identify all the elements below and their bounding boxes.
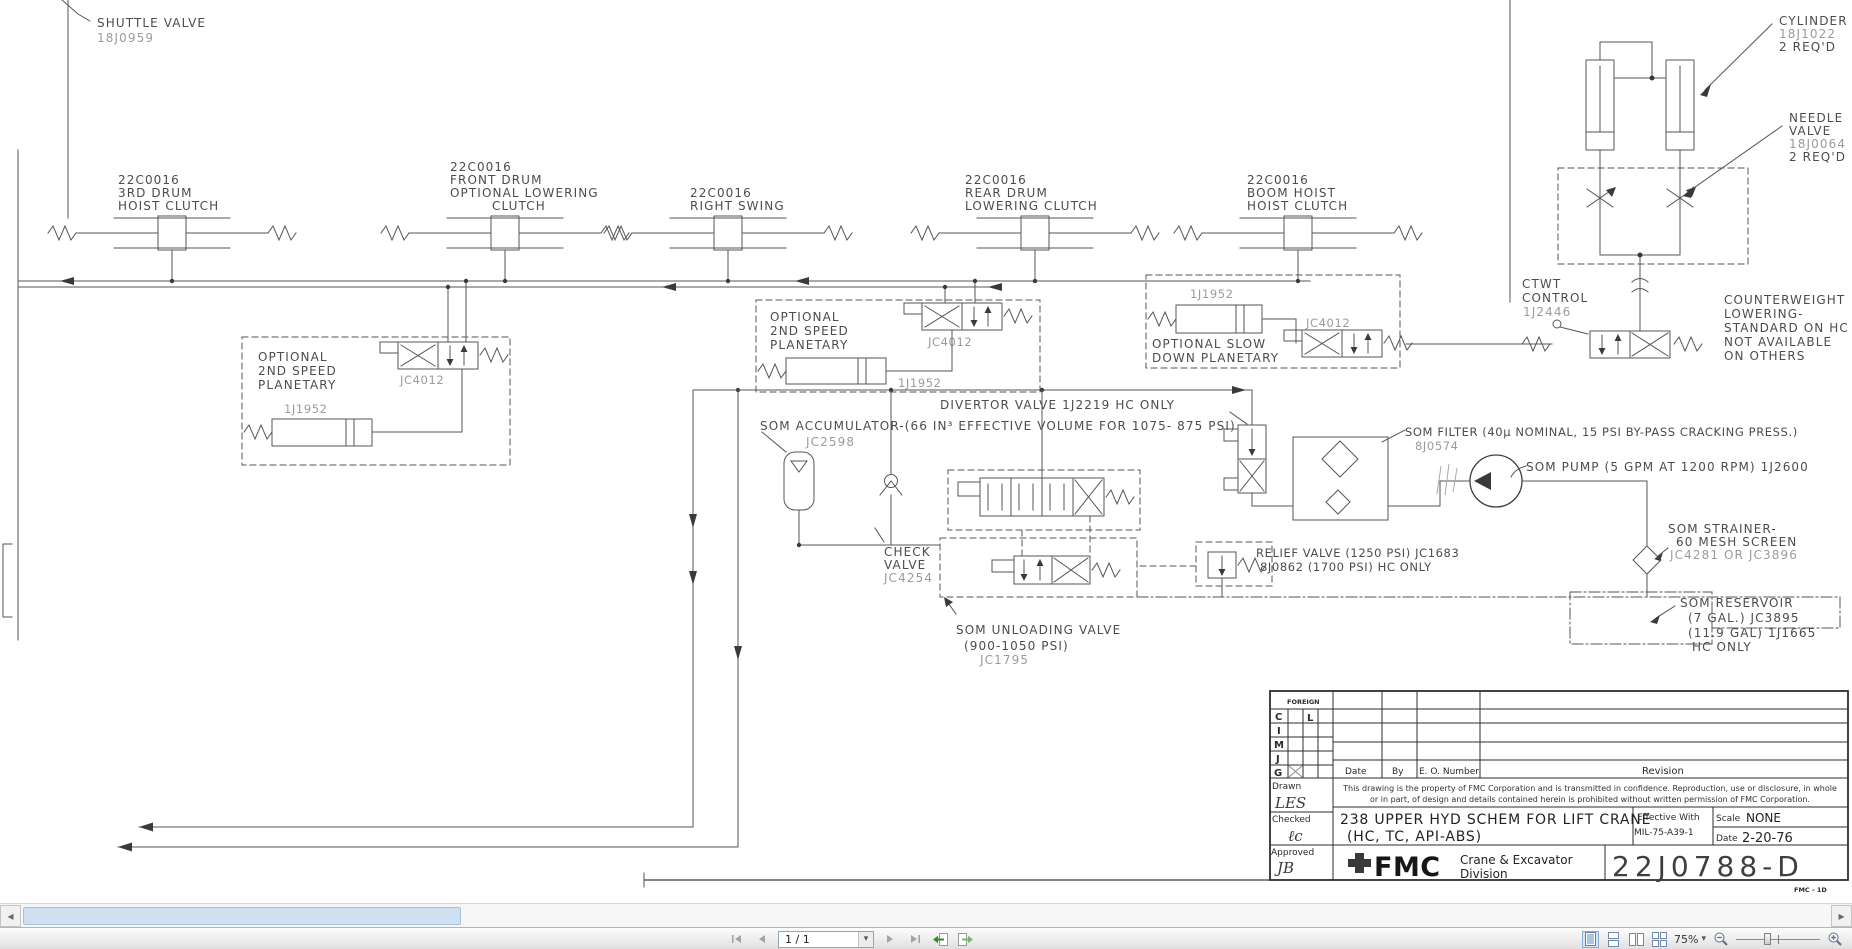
pump-label: SOM PUMP (5 GPM AT 1200 RPM) 1J2600 [1526,460,1809,474]
title-block: FOREIGN C I M J G L Date By E. O. Number… [1270,691,1848,894]
planetary-slow-down: 1J1952 JC4012 OPTIONAL SLOW DOWN PLANETA… [1146,275,1552,368]
planetary-label: OPTIONAL SLOW [1152,337,1266,351]
fmc-logo-text: FMC [1374,852,1441,883]
check-valve-label: VALVE [884,558,926,572]
clutch-label: FRONT DRUM [450,173,543,187]
clutch-label: 3RD DRUM [118,186,193,200]
relief-label: RELIEF VALVE (1250 PSI) JC1683 [1256,546,1459,560]
strainer-part: JC4281 OR JC3896 [1669,548,1798,562]
relief-label: 8J0862 (1700 PSI) HC ONLY [1260,560,1432,574]
filter-label: SOM FILTER (40μ NOMINAL, 15 PSI BY-PASS … [1405,425,1798,439]
note-line: ON OTHERS [1724,349,1805,363]
note-line: STANDARD ON HC [1724,321,1849,335]
cylinder-part: 1J1952 [284,402,328,416]
zoom-slider-center-tick [1778,935,1779,944]
planetary-label: OPTIONAL [770,310,840,324]
cylinder-label-line: CYLINDER [1779,14,1848,28]
zoom-dropdown-caret-icon: ▾ [1701,934,1706,944]
clutch-label: HOIST CLUTCH [1247,199,1348,213]
ctwt-part: 1J2446 [1523,305,1571,319]
next-page-button[interactable] [881,931,899,948]
divertor-valve [1224,390,1293,506]
sheet-border-marks [3,0,1510,887]
sheet-footnote: FMC - 1D [1794,886,1827,894]
drawing-title: (HC, TC, API-ABS) [1347,829,1482,845]
pdf-toolbar: 1 / 1 ▾ 75% ▾ [0,927,1852,949]
clutch-3rd-drum: 22C0016 3RD DRUM HOIST CLUTCH [48,173,296,283]
pdf-viewer-window: SHUTTLE VALVE 18J0959 22C0016 3RD DRUM H… [0,0,1852,949]
zoom-out-button[interactable] [1712,931,1730,948]
date-value: 2-20-76 [1742,831,1793,846]
facing-view-button[interactable] [1628,931,1645,948]
effective-with-label: Effective With [1637,813,1700,823]
zoom-in-button[interactable] [1826,931,1844,948]
column-header-revision: Revision [1642,766,1684,777]
filter-part: 8J0574 [1415,439,1459,453]
zoom-percentage-dropdown[interactable]: 75% ▾ [1674,933,1706,946]
reservoir-label: SOM RESERVOIR [1680,596,1794,610]
grid-row-letter: J [1275,754,1280,765]
next-view-button[interactable] [956,931,974,948]
unloading-label: SOM UNLOADING VALVE [956,623,1121,637]
approved-signature: JB [1274,859,1294,877]
valve-part: JC4012 [1305,316,1350,330]
horizontal-scrollbar[interactable]: ◂ ▸ [0,903,1852,927]
clutch-label: 22C0016 [1247,173,1309,187]
cylinder-label: CYLINDER 18J1022 2 REQ'D [1779,14,1848,54]
cylinder-part: 1J1952 [898,376,942,390]
note-line: NOT AVAILABLE [1724,335,1832,349]
schematic-drawing: SHUTTLE VALVE 18J0959 22C0016 3RD DRUM H… [0,0,1852,903]
planetary-label: OPTIONAL [258,350,328,364]
column-header-eo: E. O. Number [1419,767,1479,777]
note-line: LOWERING- [1724,307,1804,321]
previous-page-button[interactable] [753,931,771,948]
clutch-rear-drum: 22C0016 REAR DRUM LOWERING CLUTCH [911,173,1159,283]
checked-label: Checked [1272,815,1311,825]
note-line: COUNTERWEIGHT [1724,293,1845,307]
clutch-label: 22C0016 [118,173,180,187]
clutch-label: RIGHT SWING [690,199,785,213]
cylinder-part: 1J1952 [1190,287,1234,301]
page-indicator: 1 / 1 [785,933,810,946]
scrollbar-track[interactable] [21,905,1831,927]
scrollbar-thumb[interactable] [23,907,461,925]
zoom-level-value: 75% [1674,933,1698,946]
scroll-left-button[interactable]: ◂ [0,905,21,927]
cylinder-label-line: 18J1022 [1779,27,1836,41]
planetary-label: PLANETARY [770,338,848,352]
clutch-label: BOOM HOIST [1247,186,1336,200]
column-header-date: Date [1345,767,1367,777]
valve-part: JC4012 [927,335,972,349]
unloading-part: JC1795 [979,653,1029,667]
reservoir-label: HC ONLY [1692,640,1752,654]
first-page-button[interactable] [728,931,746,948]
clutch-label: OPTIONAL LOWERING [450,186,599,200]
drawn-signature: LES [1274,794,1306,812]
grid-row-letter: G [1274,768,1282,779]
zoom-slider[interactable] [1736,931,1820,947]
grid-row-letter: M [1274,740,1284,751]
grid-row-letter: C [1275,712,1282,723]
scale-value: NONE [1746,811,1781,825]
planetary-label: 2ND SPEED [258,364,337,378]
valve-part: JC4012 [399,373,444,387]
hydraulic-bus-lines [18,277,1310,852]
continuous-facing-view-button[interactable] [1651,931,1668,948]
needle-valve-label: NEEDLE VALVE 18J0064 2 REQ'D [1789,111,1846,164]
counterweight-cylinders [1558,24,1782,264]
clutch-label: 22C0016 [450,160,512,174]
continuous-view-button[interactable] [1605,931,1622,948]
page-dropdown-caret-icon[interactable]: ▾ [858,932,873,947]
clutch-front-drum: 22C0016 FRONT DRUM OPTIONAL LOWERING CLU… [381,160,629,283]
date-label: Date [1716,834,1738,844]
reservoir-label: (11.9 GAL) 1J1665 [1688,626,1816,640]
cylinder-label-line: 2 REQ'D [1779,40,1836,54]
drawing-title: 238 UPPER HYD SCHEM FOR LIFT CRANE [1340,812,1651,828]
clutch-label: 22C0016 [965,173,1027,187]
property-notice: or in part, of design and details contai… [1370,795,1810,804]
ctwt-label: CTWT [1522,277,1561,291]
planetary-label: DOWN PLANETARY [1152,351,1279,365]
grid-row-letter: I [1277,726,1281,737]
page-navigation: 1 / 1 ▾ [728,930,974,948]
clutch-label: 22C0016 [690,186,752,200]
needle-label-line: 2 REQ'D [1789,150,1846,164]
planetary-label: PLANETARY [258,378,336,392]
divertor-label: DIVERTOR VALVE 1J2219 HC ONLY [940,398,1175,412]
effective-with-value: MIL-75-A39-1 [1634,828,1694,838]
column-header-by: By [1392,767,1404,777]
clutch-label: CLUTCH [492,199,546,213]
accumulator-label: SOM ACCUMULATOR-(66 IN³ EFFECTIVE VOLUME… [760,419,1236,433]
check-valve-label: CHECK [884,545,931,559]
clutch-label: HOIST CLUTCH [118,199,219,213]
som-accumulator [762,432,891,547]
page-number-input[interactable]: 1 / 1 ▾ [778,931,874,948]
clutch-boom-hoist: 22C0016 BOOM HOIST HOIST CLUTCH [1174,173,1422,283]
drawn-label: Drawn [1272,782,1301,792]
checked-signature: ℓc [1288,827,1303,845]
fmc-logo-mark [1348,853,1371,873]
division-name: Division [1460,867,1508,881]
shuttle-valve-part: 18J0959 [97,31,154,45]
approved-label: Approved [1271,848,1314,858]
relief-valve [1140,542,1272,597]
planetary-label: 2ND SPEED [770,324,849,338]
scale-label: Scale [1716,814,1741,824]
check-valve-part: JC4254 [883,571,933,585]
previous-view-button[interactable] [931,931,949,948]
unloading-label: (900-1050 PSI) [964,639,1069,653]
drawing-number: 22J0788-D [1612,850,1804,883]
grid-mark: L [1307,713,1314,724]
zoom-slider-handle[interactable] [1764,933,1771,945]
needle-label-line: VALVE [1789,124,1831,138]
foreign-header: FOREIGN [1287,698,1320,706]
shuttle-valve-name: SHUTTLE VALVE [97,16,206,30]
supply-circuit [693,386,1252,394]
clutch-label: LOWERING CLUTCH [965,199,1098,213]
property-notice: This drawing is the property of FMC Corp… [1342,784,1837,793]
ctwt-control-valve: CTWT CONTROL 1J2446 [1522,255,1702,358]
clutch-right-swing: 22C0016 RIGHT SWING [604,186,852,283]
shuttle-valve-label: SHUTTLE VALVE 18J0959 [97,16,206,45]
division-name: Crane & Excavator [1460,853,1573,867]
needle-label-line: NEEDLE [1789,111,1843,125]
strainer-label: SOM STRAINER- [1668,522,1777,536]
clutch-label: REAR DRUM [965,186,1048,200]
planetary-left: OPTIONAL 2ND SPEED PLANETARY JC4012 1J19… [242,279,510,465]
scroll-right-button[interactable]: ▸ [1831,905,1852,927]
view-controls: 75% ▾ [1582,930,1844,948]
needle-label-line: 18J0064 [1789,137,1846,151]
ctwt-label: CONTROL [1522,291,1588,305]
last-page-button[interactable] [906,931,924,948]
single-page-view-button[interactable] [1582,931,1599,948]
check-valve [875,390,902,545]
som-strainer [1633,481,1668,597]
reservoir-label: (7 GAL.) JC3895 [1688,611,1800,625]
accumulator-part: JC2598 [805,435,855,449]
planetary-center: OPTIONAL 2ND SPEED PLANETARY JC4012 1J19… [756,279,1040,392]
strainer-label: 60 MESH SCREEN [1676,535,1797,549]
counterweight-note: COUNTERWEIGHT LOWERING- STANDARD ON HC N… [1724,293,1849,363]
